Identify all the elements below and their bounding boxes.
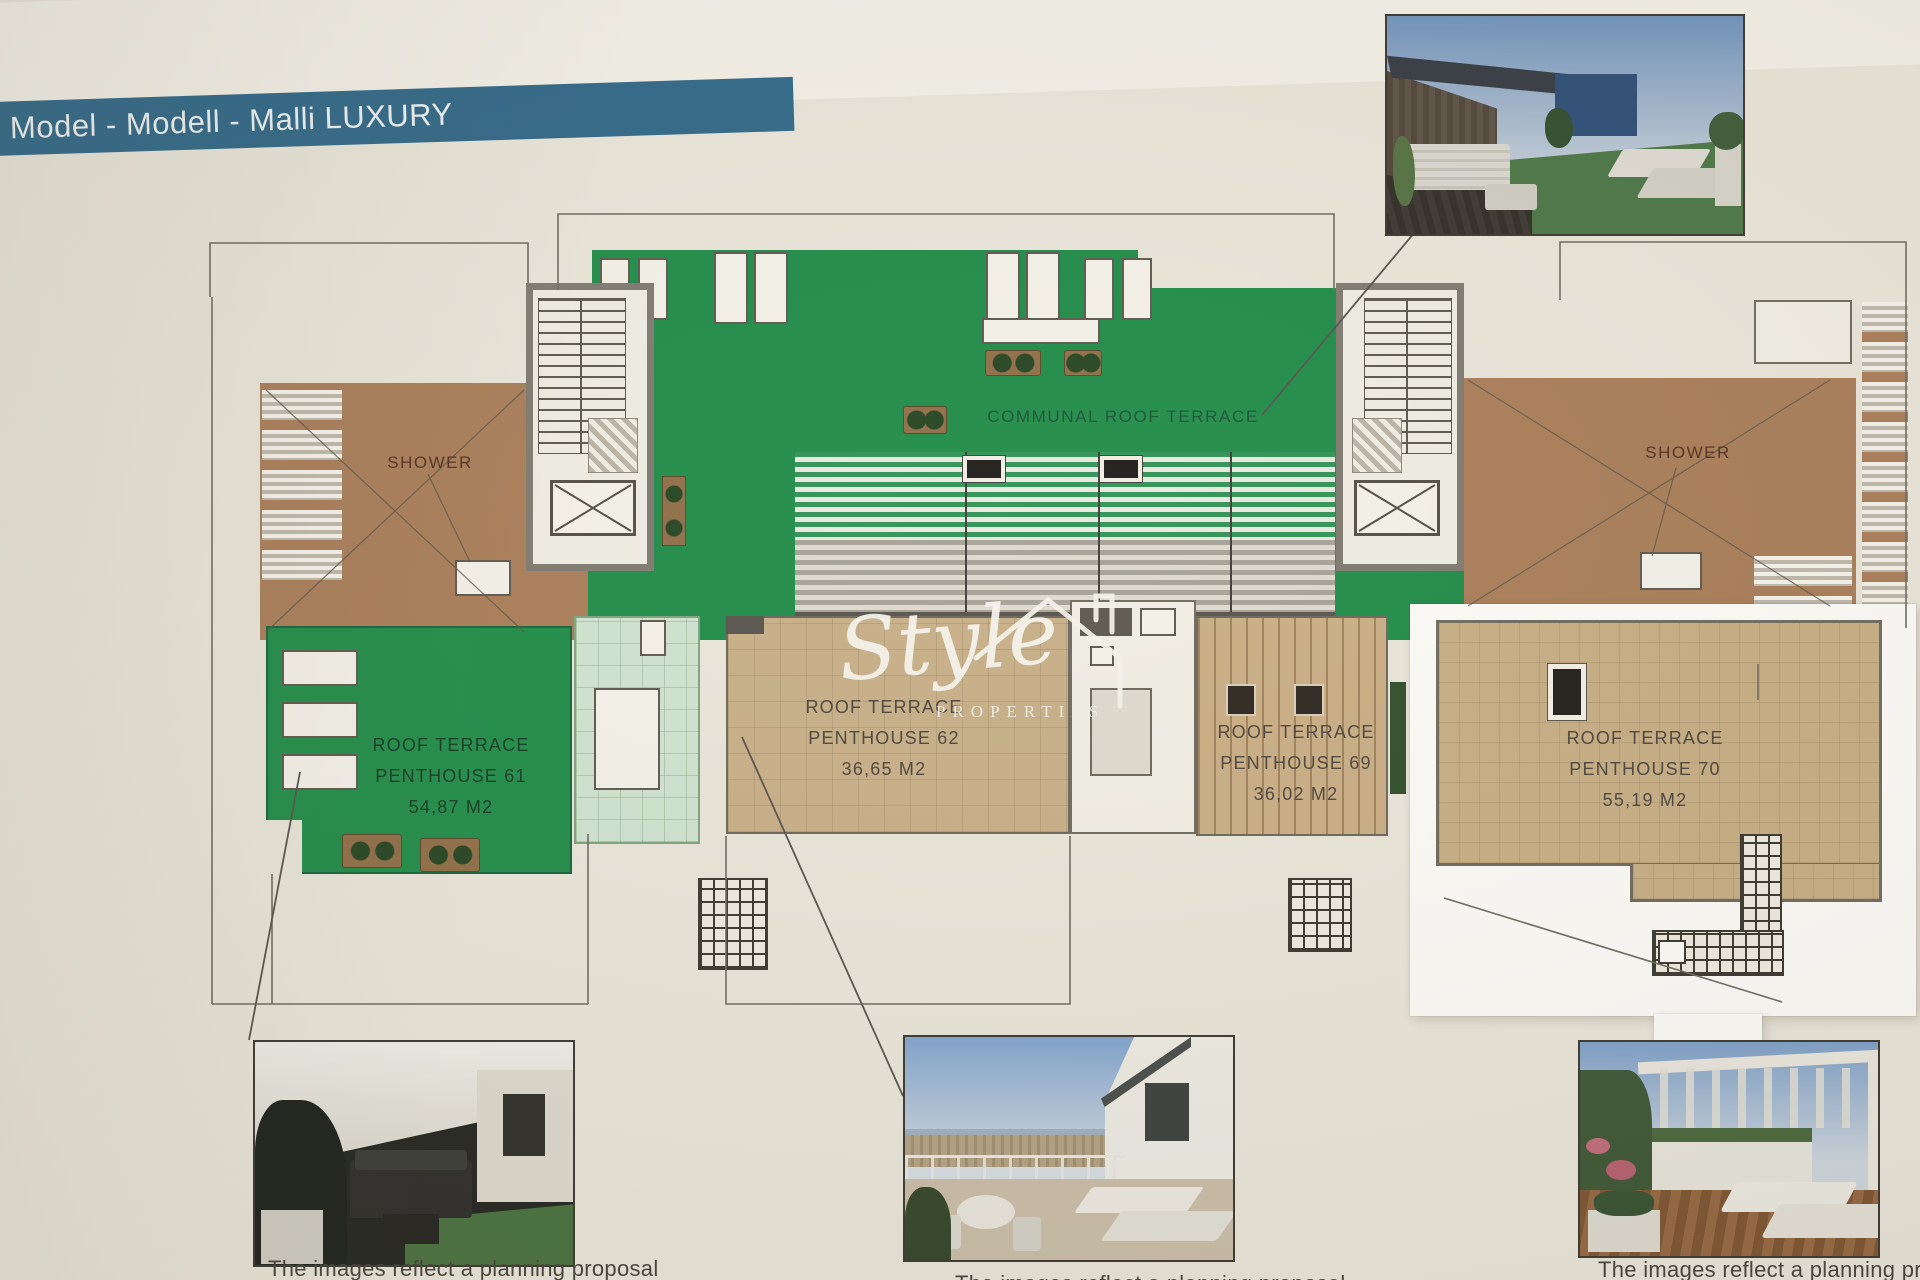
top-right-roof-box [1754, 300, 1852, 364]
mint-area-vent [640, 620, 666, 656]
planter [903, 406, 947, 434]
planter [985, 350, 1041, 376]
planter [662, 476, 686, 546]
right-shower-fixture [1640, 552, 1702, 590]
penthouse-61-label: ROOF TERRACE PENTHOUSE 61 54,87 M2 [331, 736, 571, 816]
mint-area-rooflight [594, 688, 660, 790]
skylight-bar [282, 650, 358, 686]
watermark-subtitle: PROPERTIES [936, 702, 1105, 722]
pergola-slats-upper [795, 452, 1335, 540]
style-properties-watermark: Style PROPERTIES [838, 586, 1138, 736]
roof-box [1140, 608, 1176, 636]
planter [342, 834, 402, 868]
shower-label-right: SHOWER [1618, 443, 1758, 463]
terrace-area: 36,02 M2 [1176, 785, 1416, 803]
plant [1545, 108, 1573, 148]
elevator-x-icon [1357, 483, 1437, 533]
left-shower-fixture [455, 560, 511, 596]
pink-flowers [1606, 1160, 1636, 1180]
photo-roof-terrace-render-left [253, 1040, 575, 1267]
left-vent-panels [262, 390, 342, 590]
caption-left: The images reflect a planning proposal [268, 1256, 708, 1280]
chimney-skylight [1548, 664, 1586, 720]
penthouse-61-notch [266, 820, 302, 874]
white-planter [1715, 144, 1741, 206]
skylight-bar [282, 702, 358, 738]
stair-stringer [1406, 298, 1408, 454]
plant [1594, 1190, 1654, 1216]
terrace-area: 54,87 M2 [331, 798, 571, 816]
white-planter [1588, 1210, 1660, 1252]
left-elevator [550, 480, 636, 536]
coffee-table [1485, 184, 1537, 210]
photo-roof-terrace-render-right [1578, 1040, 1880, 1258]
terrace-title: ROOF TERRACE [1525, 729, 1765, 747]
deck-skylight [1294, 684, 1324, 716]
window [503, 1094, 545, 1156]
photo-roof-terrace-render-middle [903, 1035, 1235, 1262]
right-elevator [1354, 480, 1440, 536]
photo-roof-terrace-render-top [1385, 14, 1745, 236]
stair-stringer [580, 298, 582, 454]
chair [1013, 1217, 1041, 1251]
pergola-post-box [1658, 940, 1686, 964]
skylight [1026, 252, 1060, 324]
skylight [1122, 258, 1152, 320]
pergola-skylight [1100, 456, 1142, 482]
pergola-post [1868, 1058, 1880, 1192]
sun-lounger [1100, 1211, 1235, 1241]
right-landing-herringbone [1352, 418, 1402, 473]
terrace-unit: PENTHOUSE 69 [1176, 754, 1416, 772]
skylight [1084, 258, 1114, 320]
penthouse-62-corner-block [726, 616, 764, 634]
terrace-title: ROOF TERRACE [1176, 723, 1416, 741]
right-vent-column [1862, 302, 1908, 632]
trellis-grid [1288, 878, 1352, 952]
sun-lounger [1761, 1204, 1880, 1238]
penthouse-70-label: ROOF TERRACE PENTHOUSE 70 55,19 M2 [1525, 729, 1765, 809]
communal-terrace-label: COMMUNAL ROOF TERRACE [973, 407, 1273, 427]
planter [1064, 350, 1102, 376]
round-table [957, 1195, 1015, 1229]
pergola-slats [1660, 1068, 1880, 1128]
roof-vent-box [982, 318, 1100, 344]
terrace-area: 36,65 M2 [764, 760, 1004, 778]
deck-skylight [1226, 684, 1256, 716]
sun-lounger [1074, 1187, 1204, 1213]
pergola-skylight [963, 456, 1005, 482]
skylight [986, 252, 1020, 324]
planter [420, 838, 480, 872]
left-landing-herringbone [588, 418, 638, 473]
caption-middle: The images reflect a planning proposal [955, 1271, 1395, 1280]
pink-flowers [1586, 1138, 1610, 1154]
terrace-unit: PENTHOUSE 70 [1525, 760, 1765, 778]
caption-right: The images reflect a planning proposal [1598, 1257, 1920, 1280]
plant [905, 1187, 951, 1262]
watermark-brand: Style [834, 583, 1062, 702]
skylight [754, 252, 788, 324]
scanned-plan-page: COMMUNAL ROOF TERRACE SHOWER SHOWER ROOF… [0, 0, 1920, 1280]
trellis-grid [698, 878, 768, 970]
terrace-unit: PENTHOUSE 61 [331, 767, 571, 785]
window [1145, 1083, 1189, 1141]
shower-label-left: SHOWER [360, 453, 500, 473]
table [383, 1214, 439, 1244]
skylight [714, 252, 748, 324]
penthouse-69-label: ROOF TERRACE PENTHOUSE 69 36,02 M2 [1176, 723, 1416, 803]
terrace-area: 55,19 M2 [1525, 791, 1765, 809]
sofa-back [355, 1150, 467, 1170]
terrace-title: ROOF TERRACE [331, 736, 571, 754]
pergola-divider [1230, 452, 1232, 612]
elevator-x-icon [553, 483, 633, 533]
